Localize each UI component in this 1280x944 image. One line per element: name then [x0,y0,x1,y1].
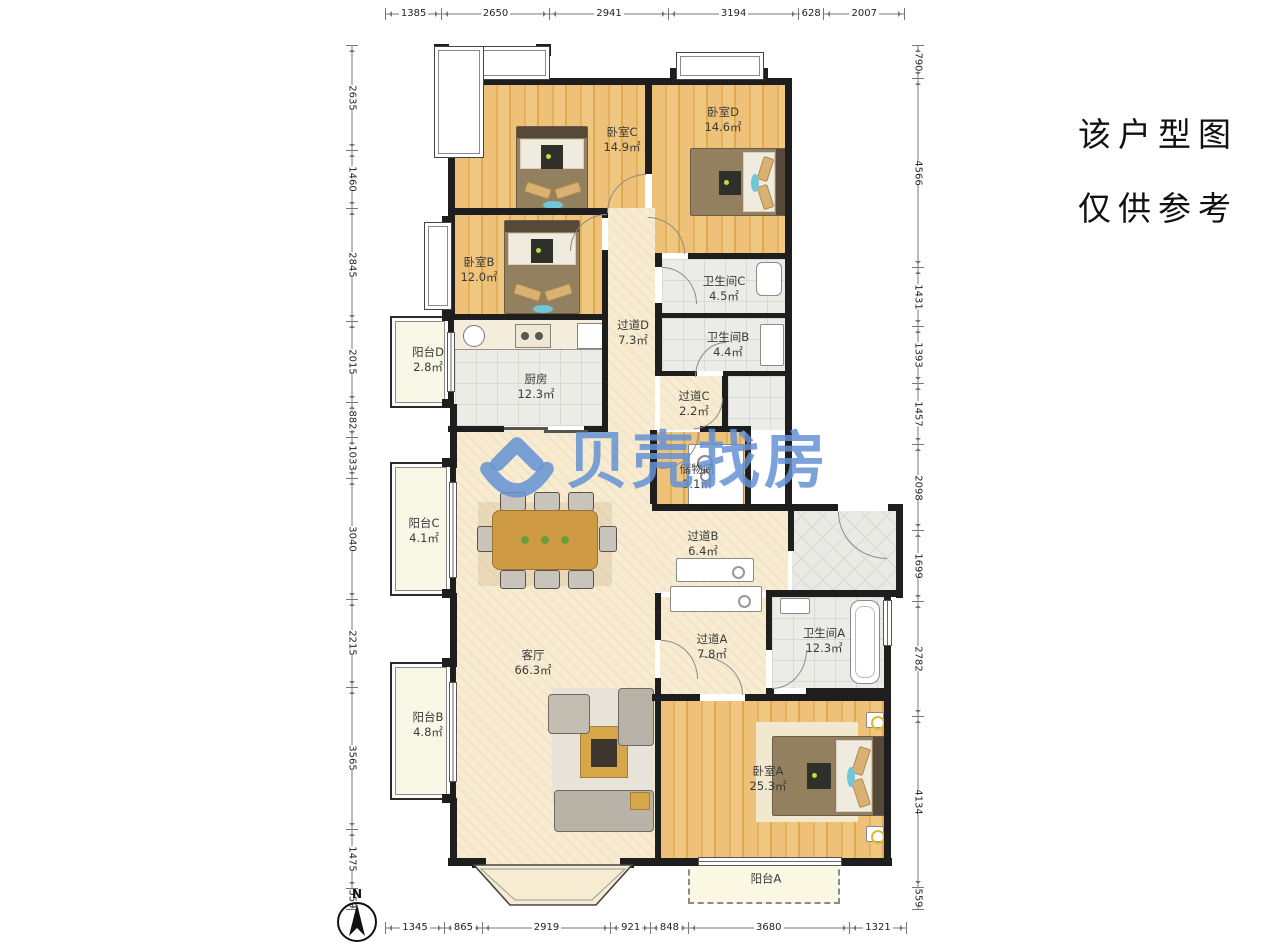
label-bedroom-b: 卧室B12.0㎡ [460,255,497,285]
balcony-c-door-window [449,482,457,578]
label-balcony-b: 阳台B4.8㎡ [413,710,444,740]
label-hallway-d: 过道D7.3㎡ [617,318,649,348]
ruler-right: 79045661431139314572098169927824134559 [912,45,924,910]
console-cabinet [670,586,762,612]
label-hallway-a: 过道A7.8㎡ [697,632,728,662]
bedroom-b-window [424,222,452,310]
bathtub-a [850,600,880,684]
stove [515,324,551,348]
bay-window-left [434,46,484,158]
label-living: 客厅66.3㎡ [514,648,551,678]
kitchen-sink [463,325,485,347]
bed-a [772,736,886,816]
ruler-top: 13852650294131946282007 [385,8,905,20]
compass-icon [336,901,378,943]
bathroom-a-window [883,600,892,646]
nightstand [866,712,884,728]
label-bathroom-c: 卫生间C4.5㎡ [703,274,746,304]
label-bathroom-a: 卫生间A12.3㎡ [803,626,845,656]
console-table [676,558,754,582]
armchair [548,694,590,734]
floor-plan-canvas: 卧室C14.9㎡ 卧室D14.6㎡ 卧室B12.0㎡ 卫生间C4.5㎡ 卫生间B… [0,0,1280,944]
sink-a [780,598,810,614]
nightstand [866,826,884,842]
compass: N [332,888,382,944]
ruler-bottom: 1345865291992184836801321 [385,922,907,934]
balcony-b-door-window [449,682,457,782]
bed-c [516,126,588,210]
disclaimer-line-1: 该户型图 [1078,108,1238,156]
label-balcony-a: 阳台A [751,872,782,887]
living-bay-window [466,864,640,908]
disclaimer-line-2: 仅供参考 [1078,182,1238,230]
label-kitchen: 厨房12.3㎡ [517,372,554,402]
watermark-text: 贝壳找房 [566,430,830,492]
label-balcony-d: 阳台D2.8㎡ [412,345,444,375]
room-shaft [728,376,785,430]
ruler-left: 2635146028452015882103330402215356514755… [346,45,358,910]
label-bedroom-d: 卧室D14.6㎡ [704,105,741,135]
label-bedroom-a: 卧室A25.3㎡ [749,764,786,794]
label-bedroom-c: 卧室C14.9㎡ [603,125,640,155]
bedroom-a-window [698,857,842,866]
label-bathroom-b: 卫生间B4.4㎡ [707,330,749,360]
side-table [630,792,650,810]
kitchen-counter [452,318,604,350]
label-balcony-c: 阳台C4.1㎡ [408,516,439,546]
label-hallway-b: 过道B6.4㎡ [688,529,719,559]
kitchen-sliding-door [504,427,548,430]
bedroom-d-window [676,52,764,80]
sofa-chaise [618,688,654,746]
compass-north-label: N [332,888,382,901]
kitchen-appliance [577,323,603,349]
dining-table [492,510,598,570]
bed-b [504,220,580,314]
bed-d [690,148,788,216]
label-hallway-c: 过道C2.2㎡ [678,389,709,419]
toilet-c [756,262,782,296]
balcony-d-door-window [447,332,455,392]
disclaimer-note: 该户型图 仅供参考 [1078,108,1238,256]
fixture-b [760,324,784,366]
